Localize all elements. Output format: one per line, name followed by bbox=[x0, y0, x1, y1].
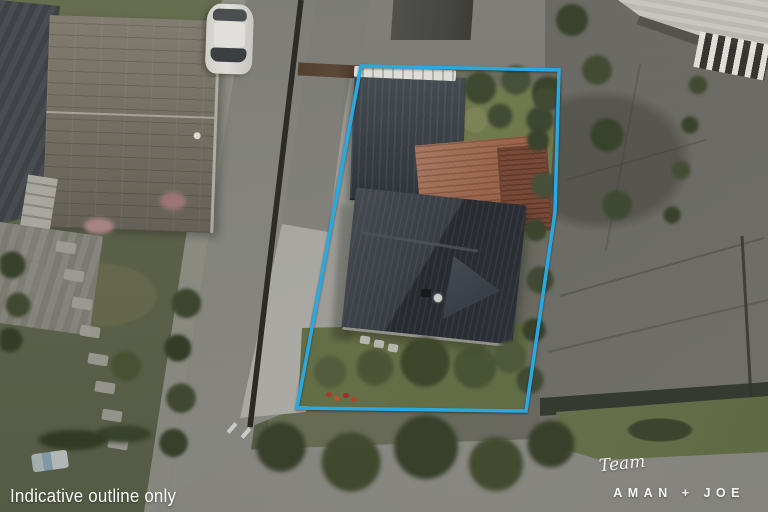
small-tree bbox=[96, 336, 156, 396]
car-windshield bbox=[210, 47, 246, 62]
street-trees-bottom bbox=[246, 402, 576, 512]
roof-ridge-line bbox=[46, 111, 214, 119]
trees-east bbox=[552, 0, 642, 260]
car-roof bbox=[214, 21, 246, 47]
brand-script-text: Team bbox=[598, 452, 646, 477]
aerial-property-photo: Indicative outline only Team AMAN + JOE bbox=[0, 0, 768, 512]
left-neighbor-house-roof bbox=[42, 15, 220, 233]
red-flowers bbox=[326, 392, 332, 397]
red-flowers bbox=[343, 393, 349, 398]
satellite-dish bbox=[194, 132, 201, 139]
flower-bed bbox=[84, 218, 114, 234]
diagonal-hedge-right bbox=[648, 70, 714, 245]
car-rear-window bbox=[213, 8, 247, 21]
roof-gable bbox=[443, 256, 503, 325]
flower-bed bbox=[160, 192, 186, 210]
top-neighbor-building bbox=[391, 0, 474, 40]
roof-ridge-line bbox=[361, 231, 478, 252]
red-flowers bbox=[334, 396, 340, 401]
left-bushes bbox=[0, 240, 55, 360]
disclaimer-text: Indicative outline only bbox=[10, 487, 176, 507]
roof-vent bbox=[421, 288, 432, 297]
parked-car bbox=[205, 3, 254, 75]
satellite-dish bbox=[434, 294, 442, 302]
brand-logo: Team AMAN + JOE bbox=[599, 460, 745, 500]
brand-name-text: AMAN + JOE bbox=[613, 486, 745, 500]
